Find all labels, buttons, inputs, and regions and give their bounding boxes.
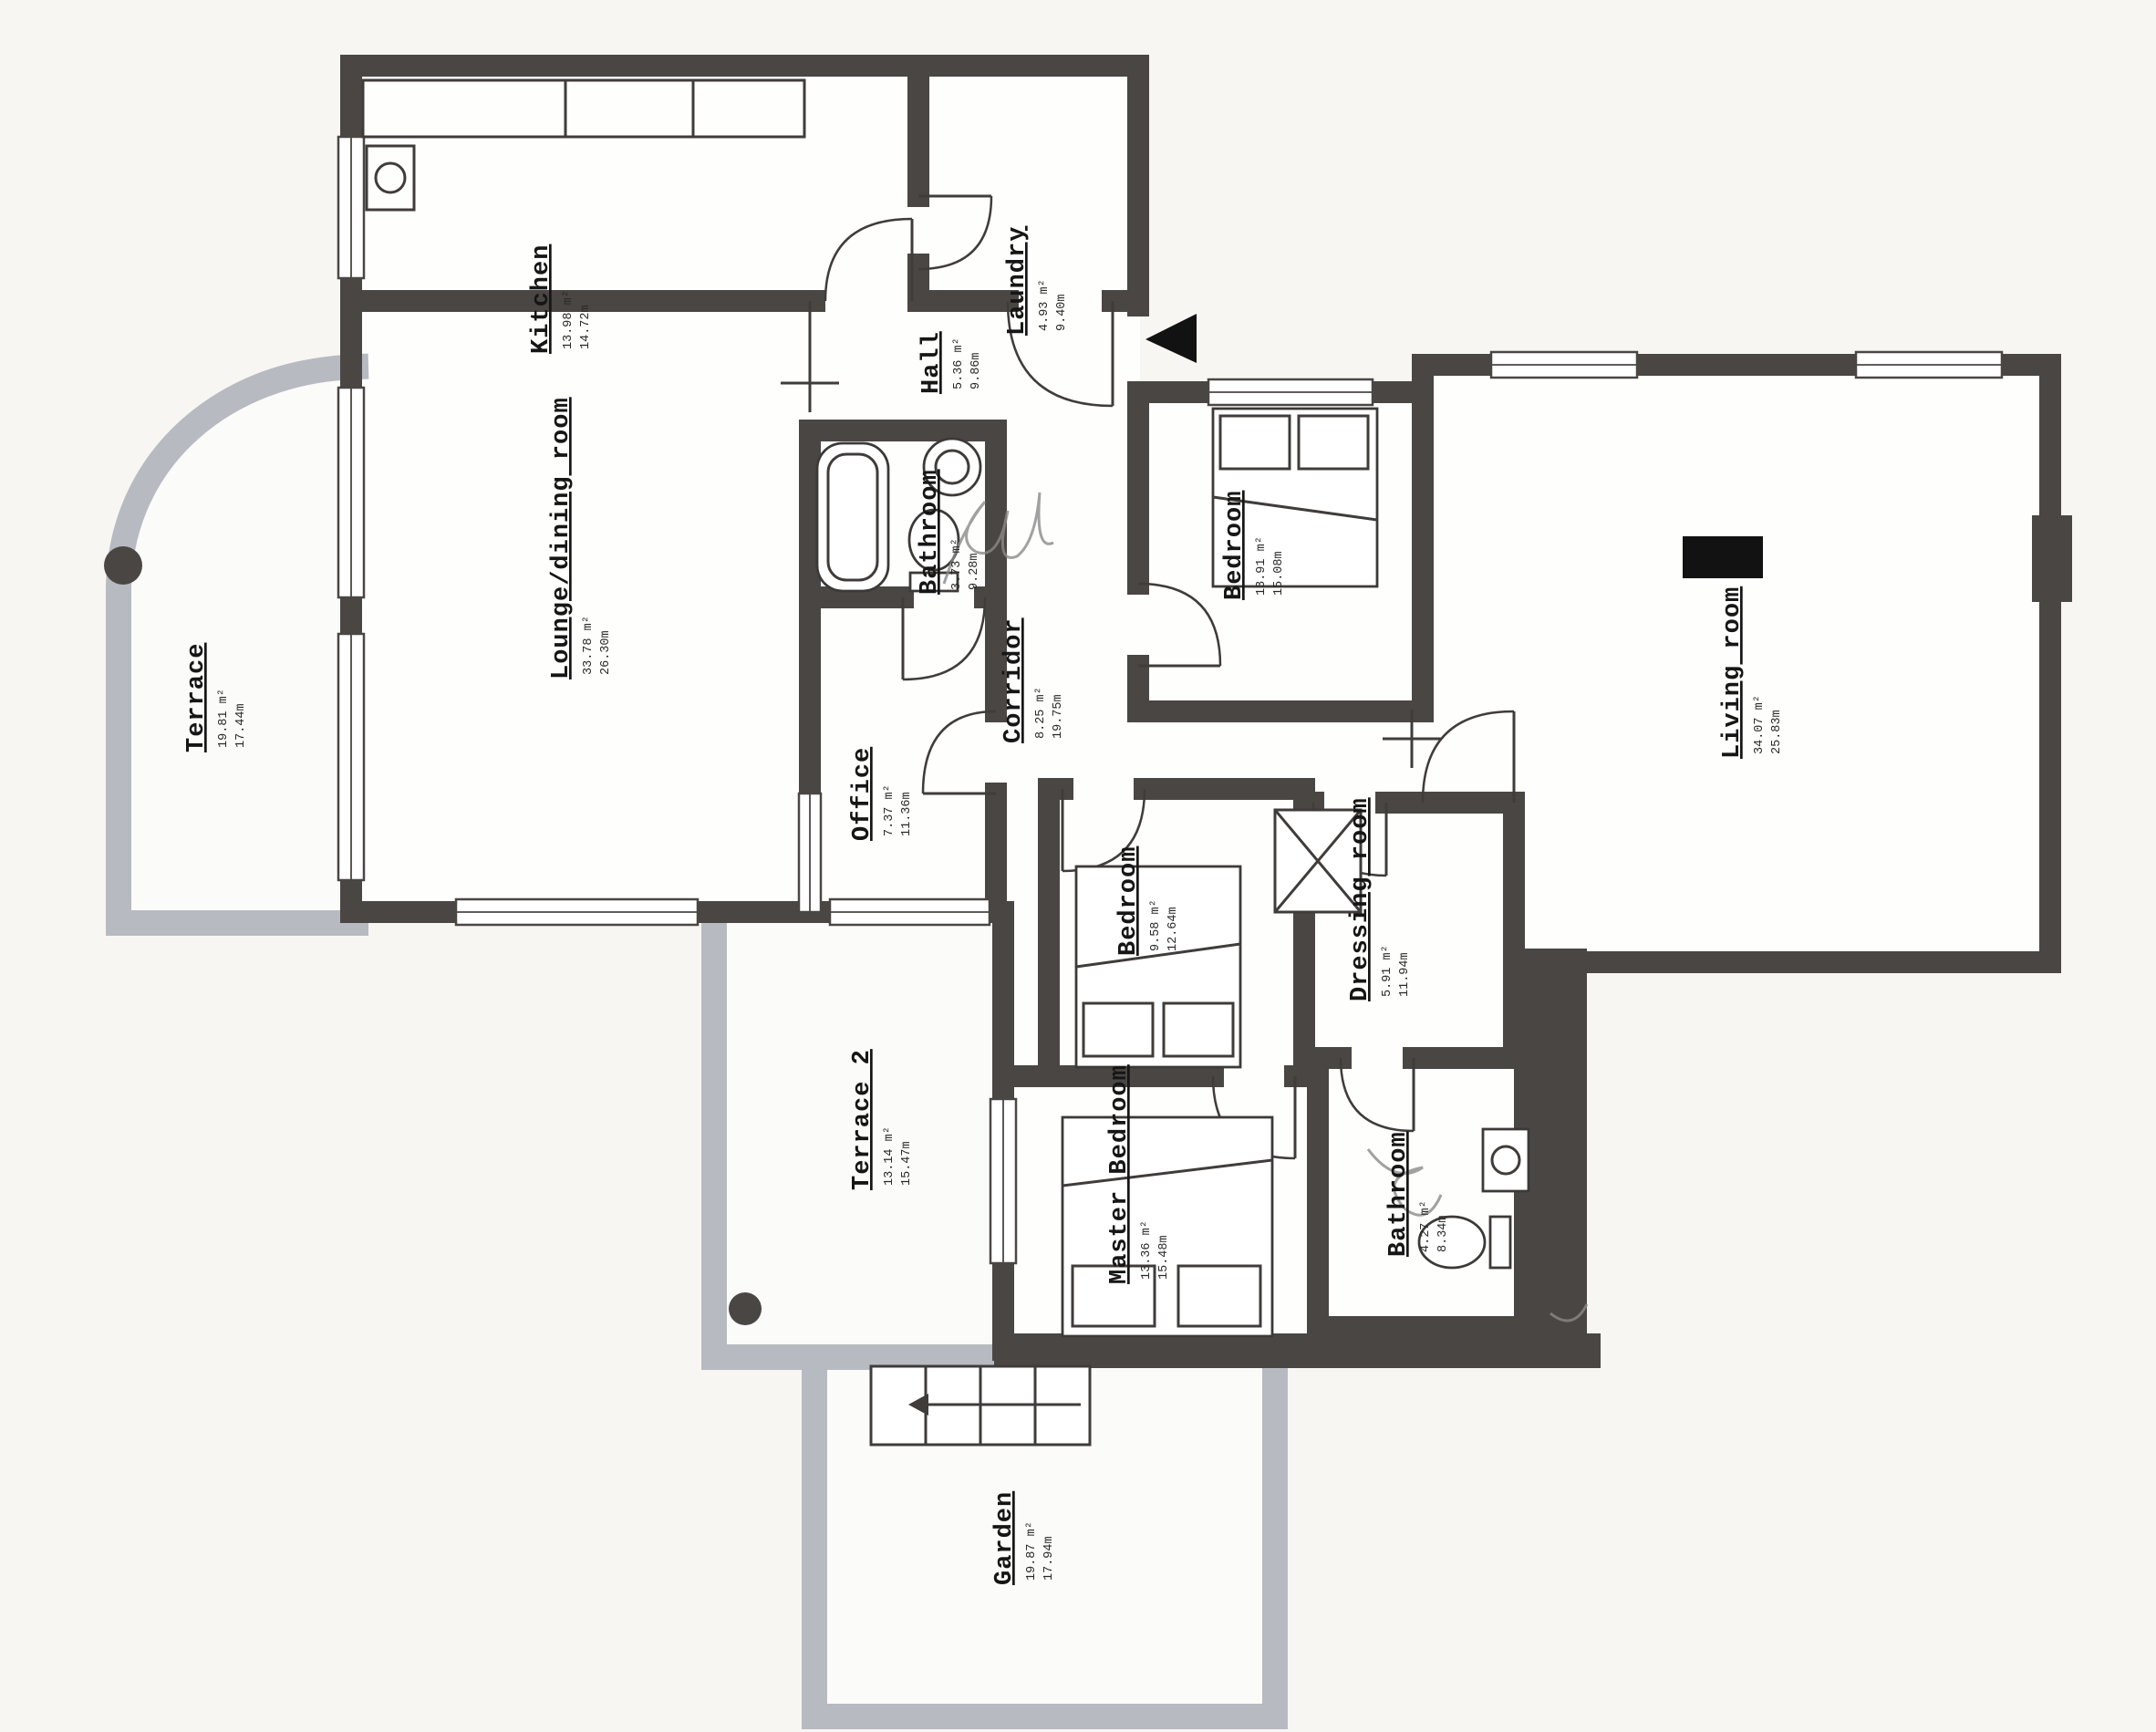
living-window-2	[1856, 352, 2002, 378]
kitchen-window	[338, 137, 364, 278]
garden-stairs	[871, 1366, 1090, 1445]
hall-perimeter: 9.86m	[969, 352, 983, 389]
living-room-perimeter: 25.83m	[1770, 710, 1784, 754]
master-name: Master Bedroom	[1106, 1064, 1134, 1284]
terrace-perimeter: 17.44m	[234, 703, 248, 748]
kitchen-area: 13.98 m²	[562, 290, 575, 349]
master-terrace2-slider	[990, 1099, 1016, 1263]
floor-plan-drawing: Kitchen 13.98 m² 14.72m Laundry 4.93 m² …	[0, 0, 2156, 1732]
office-name: Office	[849, 747, 876, 841]
bed-bedroom-mid	[1076, 866, 1240, 1067]
laundry-name: Laundry	[1004, 226, 1031, 336]
bathroom2-perimeter: 8.34m	[1436, 1215, 1450, 1252]
laundry-area: 4.93 m²	[1038, 279, 1052, 331]
floor-plan-sheet: Kitchen 13.98 m² 14.72m Laundry 4.93 m² …	[0, 0, 2156, 1732]
bathroom-name: Bathroom	[917, 469, 944, 595]
garden-area: 19.87 m²	[1025, 1521, 1039, 1581]
office-terrace2-slider	[830, 899, 990, 925]
kitchen-perimeter: 14.72m	[579, 305, 593, 349]
lounge-slider-2	[338, 634, 364, 880]
bathroom2-area: 4.27 m²	[1419, 1200, 1433, 1252]
bathroom-perimeter: 9.28m	[968, 553, 981, 590]
bedroom-top-window	[1208, 379, 1373, 405]
lounge-perimeter: 26.30m	[599, 630, 613, 675]
lounge-terrace2-slider	[456, 899, 698, 925]
laundry-perimeter: 9.40m	[1055, 294, 1069, 331]
dressing-perimeter: 11.94m	[1398, 952, 1412, 997]
right-wall-pier	[2032, 515, 2072, 602]
dressing-name: Dressing room	[1347, 797, 1374, 1001]
living-room-name: Living room	[1719, 586, 1747, 759]
terrace2-perimeter: 15.47m	[900, 1141, 914, 1186]
dressing-area: 5.91 m²	[1381, 945, 1394, 997]
hall-name: Hall	[918, 331, 946, 394]
corridor-name: Corridor	[1000, 617, 1028, 743]
bathroom2-name: Bathroom	[1385, 1131, 1413, 1257]
office-area: 7.37 m²	[883, 784, 897, 836]
master-perimeter: 15.48m	[1157, 1235, 1171, 1280]
master-area: 13.36 m²	[1140, 1220, 1154, 1280]
bedroom-top-perimeter: 15.08m	[1272, 551, 1286, 596]
north-arrow-icon	[1145, 314, 1197, 363]
bottom-exterior-wall	[994, 1333, 1601, 1368]
office-perimeter: 11.36m	[900, 792, 914, 836]
terrace-area: 19.81 m²	[217, 689, 231, 748]
bathroom2-sink	[1483, 1129, 1529, 1191]
bed-master	[1062, 1117, 1272, 1336]
corridor-perimeter: 19.75m	[1052, 694, 1065, 739]
terrace2-column	[729, 1292, 762, 1325]
terrace2-name: Terrace 2	[849, 1049, 876, 1190]
corridor-area: 8.25 m²	[1034, 687, 1048, 739]
kitchen-name: Kitchen	[528, 244, 555, 354]
bedroom-mid-name: Bedroom	[1115, 846, 1143, 956]
bathroom-area: 3.73 m²	[950, 538, 964, 590]
living-room-area: 34.07 m²	[1753, 695, 1767, 754]
living-window-1	[1491, 352, 1637, 378]
terrace-column	[104, 546, 142, 585]
terrace-name: Terrace	[183, 643, 211, 752]
terrace2-area: 13.14 m²	[883, 1126, 897, 1186]
hall-area: 5.36 m²	[952, 337, 966, 389]
bedroom-mid-area: 9.58 m²	[1149, 899, 1163, 951]
toilet2-tank	[1490, 1217, 1510, 1268]
bedroom-top-area: 13.91 m²	[1255, 536, 1269, 596]
tv-unit	[1683, 536, 1763, 578]
bedroom-top-name: Bedroom	[1221, 491, 1249, 600]
office-pocket-door	[799, 793, 821, 912]
lounge-area: 33.78 m²	[582, 616, 596, 675]
lounge-name: Lounge/dining room	[548, 397, 575, 679]
garden-name: Garden	[991, 1491, 1019, 1585]
garden-perimeter: 17.94m	[1042, 1536, 1056, 1581]
lounge-slider-1	[338, 388, 364, 597]
bedroom-mid-perimeter: 12.64m	[1166, 907, 1180, 951]
